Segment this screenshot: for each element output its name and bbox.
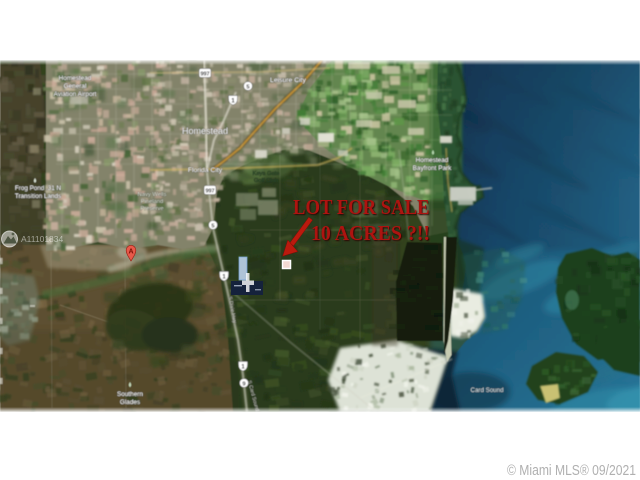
svg-text:Transition Lands: Transition Lands [15,193,61,200]
svg-text:Pineland: Pineland [141,199,164,205]
svg-text:Leisure City: Leisure City [270,77,306,84]
svg-text:Southern: Southern [117,391,143,398]
svg-text:Homestead: Homestead [59,75,92,82]
svg-text:Preserve: Preserve [140,206,163,212]
svg-text:Homestead: Homestead [416,157,449,164]
svg-text:A: A [128,248,133,255]
svg-text:Golf Club: Golf Club [254,178,278,184]
svg-text:Florida City: Florida City [188,167,223,174]
svg-text:997: 997 [201,71,210,77]
svg-text:General: General [64,83,87,90]
svg-text:Aviation Airport: Aviation Airport [54,91,97,98]
svg-text:LOT FOR SALE: LOT FOR SALE [293,195,430,219]
svg-text:Glades: Glades [120,399,140,406]
svg-text:10 ACRES ?!!: 10 ACRES ?!! [311,221,430,245]
svg-text:997: 997 [206,188,215,194]
svg-text:Card Sound: Card Sound [470,387,504,394]
svg-text:Bayfront Park: Bayfront Park [413,165,453,172]
svg-text:Frog Pond .31 N: Frog Pond .31 N [15,185,62,192]
svg-text:Navy Wells: Navy Wells [138,192,167,198]
svg-text:Homestead: Homestead [182,126,228,136]
svg-text:Keys Gate: Keys Gate [252,171,279,177]
svg-text:© Miami MLS® 09/2021: © Miami MLS® 09/2021 [507,463,636,479]
svg-text:A11101834: A11101834 [21,234,63,244]
